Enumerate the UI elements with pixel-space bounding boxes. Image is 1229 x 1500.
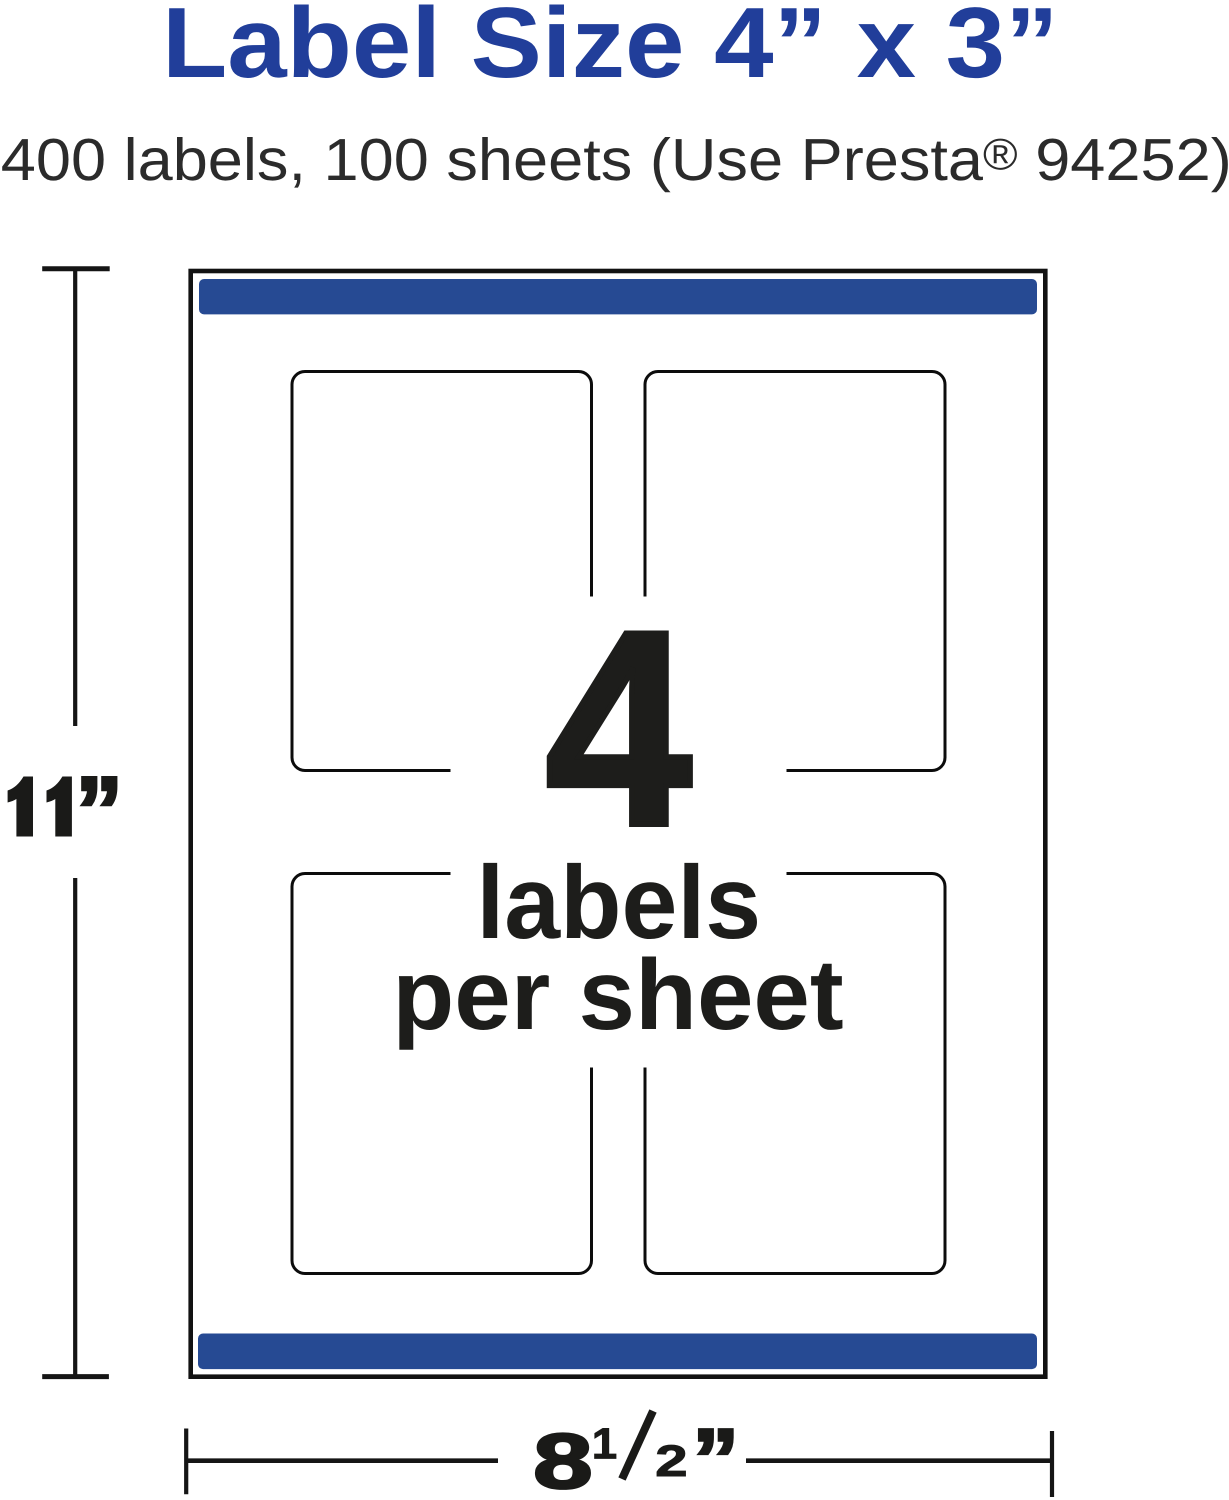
svg-text:per sheet: per sheet <box>392 939 843 1051</box>
svg-text:1: 1 <box>592 1419 617 1468</box>
svg-text:4: 4 <box>545 574 692 885</box>
svg-text:Label Size 4” x 3”: Label Size 4” x 3” <box>162 0 1059 99</box>
svg-text:”: ” <box>692 1411 739 1500</box>
svg-text:8: 8 <box>533 1418 593 1500</box>
svg-text:400 labels, 100 sheets (Use Pr: 400 labels, 100 sheets (Use Presta® 9425… <box>1 127 1229 194</box>
svg-text:”: ” <box>75 757 123 865</box>
svg-text:2: 2 <box>655 1436 688 1486</box>
